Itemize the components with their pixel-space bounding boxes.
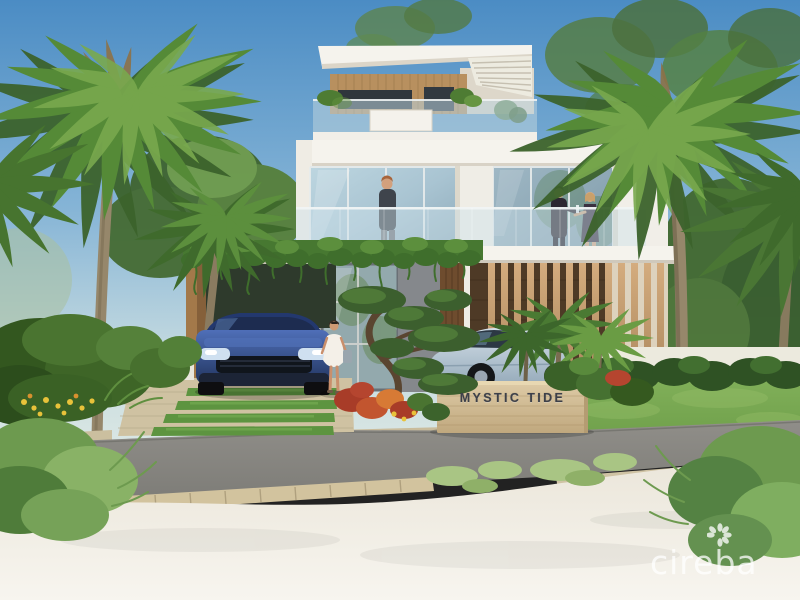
blue-suv-car <box>195 313 331 400</box>
flower-icon <box>707 522 733 548</box>
brand-watermark-text: cireba <box>650 546 800 579</box>
penthouse-level <box>313 45 537 141</box>
property-sign-text: MYSTIC TIDE <box>437 391 588 405</box>
roof-stair-bulkhead <box>370 110 432 131</box>
brand-watermark: cireba <box>650 522 800 579</box>
villa-exterior-rendering: MYSTIC TIDE cireba <box>0 0 800 600</box>
